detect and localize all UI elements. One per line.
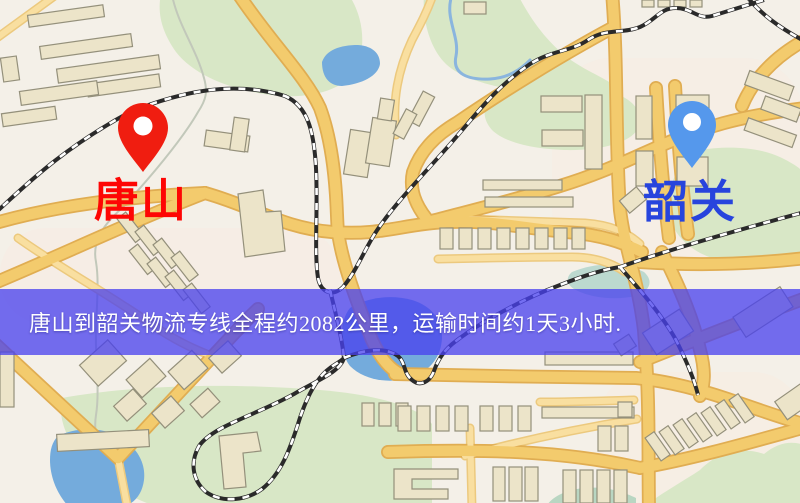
origin-city-label: 唐山 (94, 179, 188, 224)
route-info-banner: 唐山到韶关物流专线全程约2082公里，运输时间约1天3小时. (0, 289, 800, 355)
map-image (0, 0, 800, 503)
destination-city-label: 韶关 (643, 180, 737, 225)
logistics-route-map: 唐山 韶关 唐山到韶关物流专线全程约2082公里，运输时间约1天3小时. (0, 0, 800, 503)
route-info-text: 唐山到韶关物流专线全程约2082公里，运输时间约1天3小时. (29, 306, 622, 338)
